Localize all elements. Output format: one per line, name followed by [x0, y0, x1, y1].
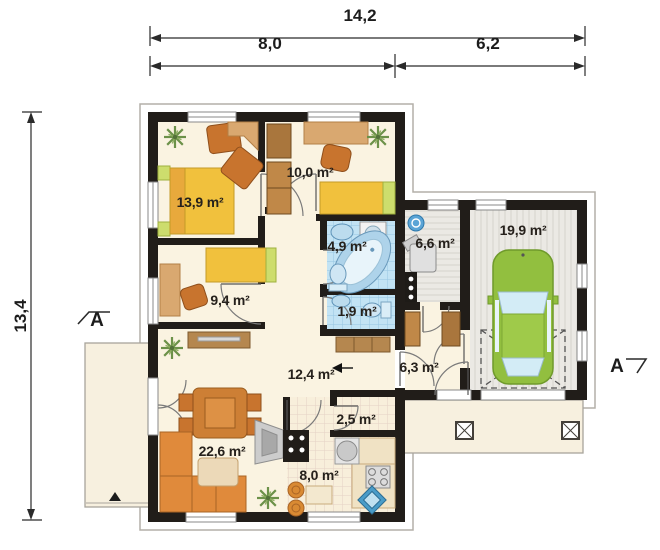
room-label-pantry: 2,5 m²: [311, 411, 401, 429]
kitchen-table: [306, 486, 332, 504]
window-icon: [188, 112, 236, 122]
nightstand: [158, 222, 170, 236]
window-icon: [308, 512, 360, 522]
nightstand: [158, 166, 170, 180]
plant-icon: [164, 126, 186, 148]
room-label-bedroom-top: 10,0 m²: [265, 164, 355, 182]
cabinet: [336, 337, 390, 352]
room-label-bedroom-large: 13,9 m²: [155, 194, 245, 212]
dimension-label-side: 13,4: [11, 276, 31, 356]
bed-pillow: [383, 182, 395, 214]
toilet-icon: [329, 264, 347, 291]
terrace: [85, 343, 155, 507]
stool: [288, 500, 304, 516]
wardrobe: [442, 312, 460, 346]
chair: [179, 394, 193, 411]
room-label-bedroom-mid: 9,4 m²: [185, 292, 275, 310]
window-icon: [428, 200, 458, 210]
window-icon: [308, 112, 360, 122]
floor-plan-page: 14,2 8,0 6,2 13,4 13,9 m² 10,0 m² 4,9 m²…: [0, 0, 660, 550]
window-icon: [186, 512, 236, 522]
plant-icon: [161, 337, 183, 359]
coffee-table: [198, 458, 238, 486]
desk: [304, 122, 368, 144]
room-label-vestibule: 6,3 m²: [374, 359, 464, 377]
dimension-label-left-span: 8,0: [230, 34, 310, 54]
room-label-hall: 12,4 m²: [266, 366, 356, 384]
french-door: [148, 378, 158, 435]
car-icon: [488, 250, 558, 384]
plant-icon: [257, 487, 279, 509]
window-icon: [577, 331, 587, 361]
bed-pillow: [266, 248, 276, 282]
chimney-stove-icon: [283, 430, 309, 462]
room-label-kitchen: 8,0 m²: [274, 467, 364, 485]
room-label-bathroom: 4,9 m²: [302, 238, 392, 256]
wardrobe: [405, 312, 420, 346]
porch-column-icon: [456, 422, 473, 439]
window-icon: [577, 264, 587, 288]
window-icon: [148, 278, 158, 324]
garage-door-threshold: [481, 390, 565, 400]
entrance-threshold: [437, 390, 471, 400]
section-marker-left: A: [84, 310, 110, 332]
porch-column-icon: [562, 422, 579, 439]
room-label-wc: 1,9 m²: [312, 303, 402, 321]
section-marker-right: A: [604, 356, 630, 378]
room-label-garage: 19,9 m²: [478, 222, 568, 240]
washer-icon: [408, 215, 424, 231]
desk: [160, 264, 180, 316]
room-label-utility: 6,6 m²: [390, 235, 480, 253]
window-icon: [476, 200, 506, 210]
dimension-label-right-span: 6,2: [448, 34, 528, 54]
wardrobe: [267, 124, 291, 158]
porch: [398, 400, 583, 453]
dimension-label-total: 14,2: [320, 6, 400, 26]
chair: [247, 394, 261, 411]
room-label-living: 22,6 m²: [177, 443, 267, 461]
plant-icon: [367, 126, 389, 148]
